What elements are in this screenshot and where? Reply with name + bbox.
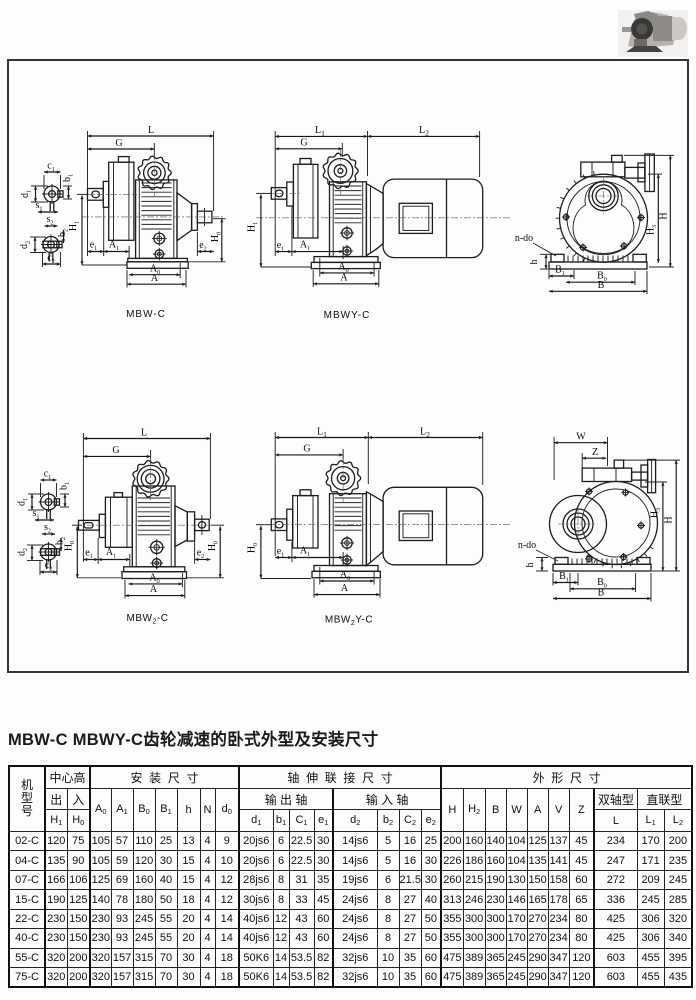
- svg-text:n-do: n-do: [515, 233, 533, 244]
- svg-text:L2: L2: [419, 125, 429, 138]
- svg-text:H: H: [664, 516, 675, 523]
- svg-text:L1: L1: [315, 125, 325, 138]
- svg-text:W: W: [576, 432, 586, 443]
- svg-text:e1: e1: [277, 546, 285, 559]
- svg-text:A1: A1: [300, 240, 310, 253]
- svg-text:d1: d1: [20, 190, 33, 198]
- svg-text:d2: d2: [17, 548, 30, 556]
- svg-text:d1: d1: [17, 498, 30, 506]
- svg-text:Z: Z: [592, 447, 598, 458]
- svg-text:MBW-C: MBW-C: [126, 309, 166, 320]
- svg-text:G: G: [115, 138, 122, 149]
- svg-text:e2: e2: [197, 548, 205, 561]
- svg-text:L: L: [148, 125, 154, 136]
- svg-text:H3: H3: [650, 508, 663, 518]
- svg-text:B: B: [598, 280, 605, 291]
- svg-text:c2: c2: [45, 560, 53, 573]
- svg-text:H0: H0: [207, 541, 220, 551]
- svg-text:e1: e1: [85, 548, 93, 561]
- svg-text:H1: H1: [247, 222, 260, 232]
- svg-text:G: G: [303, 444, 310, 455]
- svg-text:A1: A1: [106, 547, 116, 560]
- svg-text:MBWY-C: MBWY-C: [324, 310, 371, 321]
- svg-text:b1: b1: [62, 174, 75, 182]
- svg-text:c1: c1: [47, 161, 55, 174]
- svg-text:c1: c1: [44, 469, 52, 482]
- svg-text:L1: L1: [317, 427, 327, 440]
- svg-text:s2: s2: [44, 522, 51, 535]
- svg-text:A: A: [150, 584, 158, 595]
- svg-text:B: B: [598, 588, 605, 599]
- svg-text:H1: H1: [68, 221, 81, 231]
- svg-text:A: A: [340, 273, 348, 284]
- svg-text:H: H: [659, 212, 670, 219]
- svg-text:b2: b2: [55, 537, 68, 545]
- svg-text:B1: B1: [559, 571, 569, 584]
- svg-text:s2: s2: [47, 214, 54, 227]
- svg-text:c2: c2: [47, 253, 55, 266]
- svg-text:MBW2-C: MBW2-C: [127, 613, 169, 626]
- svg-text:G: G: [300, 138, 307, 149]
- svg-text:H0: H0: [247, 543, 260, 553]
- svg-text:A: A: [341, 583, 349, 594]
- svg-text:G: G: [112, 445, 119, 456]
- svg-text:H0: H0: [210, 232, 223, 242]
- svg-text:h: h: [529, 260, 540, 265]
- svg-text:b1: b1: [59, 482, 72, 490]
- svg-text:L: L: [141, 428, 147, 439]
- svg-text:h: h: [525, 563, 536, 568]
- svg-text:A1: A1: [109, 240, 119, 253]
- svg-text:e1: e1: [277, 240, 285, 253]
- svg-text:e1: e1: [90, 240, 98, 253]
- svg-text:L2: L2: [420, 427, 430, 440]
- svg-text:d2: d2: [19, 241, 32, 249]
- svg-text:MBW2Y-C: MBW2Y-C: [325, 615, 373, 628]
- svg-text:A: A: [151, 273, 159, 284]
- svg-text:e2: e2: [199, 240, 207, 253]
- svg-text:n-do: n-do: [518, 540, 536, 551]
- svg-text:B1: B1: [555, 265, 565, 278]
